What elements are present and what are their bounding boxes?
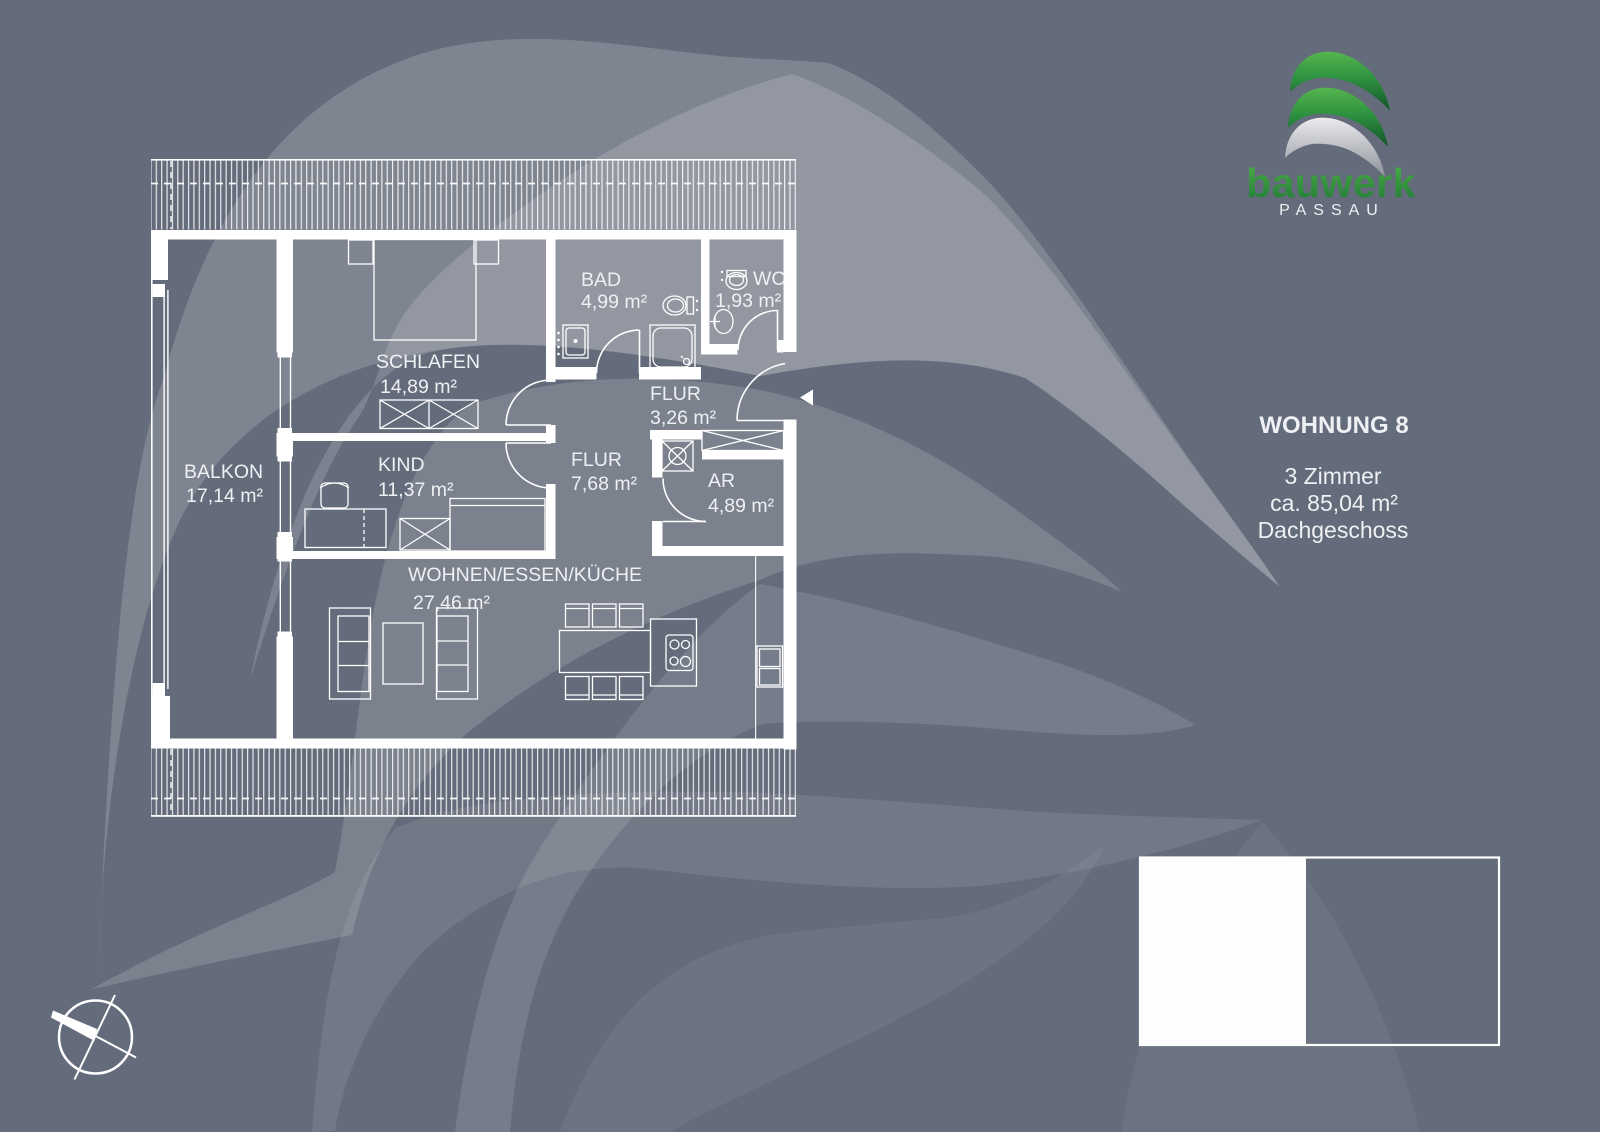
svg-text:FLUR: FLUR: [571, 449, 622, 471]
svg-text:1,93 m²: 1,93 m²: [715, 290, 782, 312]
svg-text:3 Zimmer: 3 Zimmer: [1284, 463, 1381, 489]
svg-text:FLUR: FLUR: [650, 383, 701, 405]
svg-text:17,14 m²: 17,14 m²: [186, 485, 263, 507]
svg-text:KIND: KIND: [378, 454, 425, 476]
svg-text:7,68 m²: 7,68 m²: [571, 473, 638, 495]
svg-text:bauwerk: bauwerk: [1246, 160, 1416, 206]
svg-text:ca. 85,04 m²: ca. 85,04 m²: [1270, 490, 1398, 516]
svg-text:BAD: BAD: [581, 269, 621, 291]
svg-text:WOHNUNG 8: WOHNUNG 8: [1259, 412, 1408, 439]
svg-text:Dachgeschoss: Dachgeschoss: [1258, 517, 1409, 543]
svg-text:27,46 m²: 27,46 m²: [413, 592, 490, 614]
svg-text:3,26 m²: 3,26 m²: [650, 407, 717, 429]
svg-text:11,37 m²: 11,37 m²: [378, 479, 454, 501]
svg-text:AR: AR: [708, 470, 735, 492]
svg-text:SCHLAFEN: SCHLAFEN: [376, 351, 480, 373]
svg-text:PASSAU: PASSAU: [1279, 202, 1385, 219]
svg-text:4,89 m²: 4,89 m²: [708, 495, 775, 517]
svg-text:4,99 m²: 4,99 m²: [581, 291, 648, 313]
svg-text:14,89 m²: 14,89 m²: [380, 376, 457, 398]
svg-text:BALKON: BALKON: [184, 461, 263, 483]
svg-text:WOHNEN/ESSEN/KÜCHE: WOHNEN/ESSEN/KÜCHE: [408, 564, 642, 586]
svg-text:WC: WC: [753, 268, 786, 290]
